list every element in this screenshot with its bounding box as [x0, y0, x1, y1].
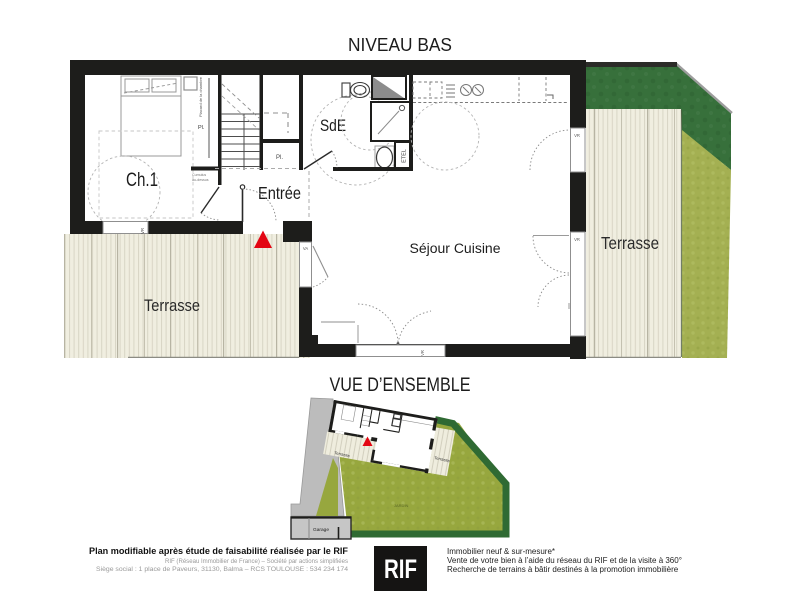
svg-text:Pl.: Pl.	[198, 125, 205, 131]
svg-text:Immobilier neuf & sur-mesure*: Immobilier neuf & sur-mesure*	[447, 547, 555, 556]
svg-text:RIF (Réseau Immobilier de Fran: RIF (Réseau Immobilier de France) – Soci…	[165, 558, 348, 565]
svg-text:Entrée: Entrée	[258, 183, 301, 203]
svg-text:VA: VA	[303, 246, 308, 251]
svg-text:Terrasse: Terrasse	[144, 296, 200, 315]
svg-text:Pl.: Pl.	[276, 155, 283, 161]
svg-text:VUE D’ENSEMBLE: VUE D’ENSEMBLE	[330, 374, 471, 396]
svg-text:au-dessus: au-dessus	[192, 178, 209, 182]
svg-text:SdE: SdE	[320, 116, 346, 135]
svg-text:VR: VR	[140, 227, 145, 234]
svg-text:Ch.1: Ch.1	[126, 170, 158, 191]
svg-text:JARDIN: JARDIN	[394, 503, 409, 508]
svg-text:VR: VR	[574, 237, 580, 242]
svg-text:Garage: Garage	[313, 527, 329, 533]
svg-text:VR: VR	[420, 350, 425, 356]
svg-text:Recherche de terrains à bâtir: Recherche de terrains à bâtir destinés à…	[447, 565, 679, 574]
svg-text:RIF: RIF	[384, 554, 417, 584]
svg-text:ETEL: ETEL	[402, 149, 408, 163]
svg-text:Plan modifiable après étude de: Plan modifiable après étude de faisabili…	[89, 546, 348, 556]
svg-text:Placard de la chambre: Placard de la chambre	[198, 76, 203, 117]
svg-text:Séjour Cuisine: Séjour Cuisine	[410, 241, 501, 257]
svg-text:VR: VR	[574, 133, 580, 138]
svg-text:Terrasse: Terrasse	[601, 233, 659, 253]
svg-text:Vente de votre bien à l’aide d: Vente de votre bien à l’aide du réseau d…	[447, 556, 682, 565]
svg-text:Cumulus: Cumulus	[192, 173, 206, 177]
svg-text:NIVEAU BAS: NIVEAU BAS	[348, 34, 452, 55]
svg-text:Siège social : 1 place de Pave: Siège social : 1 place de Paveurs, 31130…	[96, 566, 348, 573]
